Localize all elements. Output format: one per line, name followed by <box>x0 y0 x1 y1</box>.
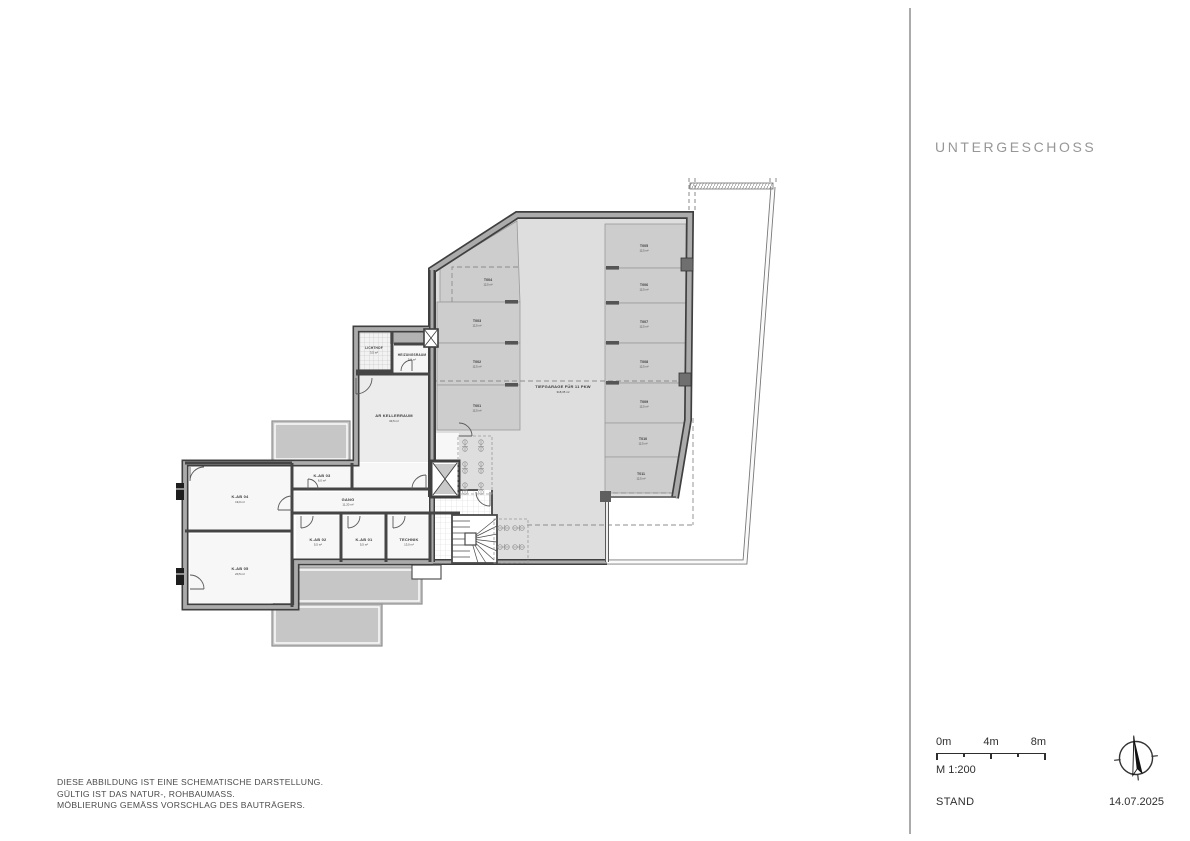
stall-area: 12,5 m² <box>636 477 645 481</box>
stand-date: 14.07.2025 <box>1064 796 1164 808</box>
scale-tick-label-8: 8m <box>1031 736 1046 748</box>
stall-label: T011 <box>637 472 645 476</box>
room-area: 11,20 m² <box>342 503 353 507</box>
room-label: LICHTHOF <box>365 346 383 350</box>
floor-plan-drawing: TIEFGARAGE FÜR 11 PKW 318,35 m² T001 12,… <box>170 165 820 665</box>
stall-area: 12,5 m² <box>639 249 648 253</box>
room-area: 3,5 m² <box>370 351 378 355</box>
stall-area: 12,5 m² <box>472 365 481 369</box>
stall-area: 12,5 m² <box>638 442 647 446</box>
shaft-icon <box>424 329 438 347</box>
scale-bar-tick <box>1044 753 1046 760</box>
north-compass-icon <box>1111 729 1161 785</box>
stall-label: T001 <box>473 404 481 408</box>
room-label: K-AB 04 <box>232 494 250 499</box>
room-label: K-AB 02 <box>310 537 328 542</box>
room-label: K-AB 03 <box>314 473 332 478</box>
room-area: 13,0 m² <box>404 543 414 547</box>
room-area: 6,0 m² <box>318 479 326 483</box>
room-label: GANG <box>342 497 355 502</box>
disclaimer-text: DIESE ABBILDUNG IST EINE SCHEMATISCHE DA… <box>57 777 323 812</box>
stall-label: T010 <box>639 437 647 441</box>
room-label: TECHNIK <box>399 537 418 542</box>
stall-area: 12,5 m² <box>483 283 492 287</box>
stall-label: T009 <box>640 400 648 404</box>
disclaimer-line-2: GÜLTIG IST DAS NATUR-, ROHBAUMASS. <box>57 789 323 801</box>
scale-tick-label-4: 4m <box>983 736 998 748</box>
scale-bar-tick <box>1017 753 1019 757</box>
scale-bar-tick <box>990 753 992 759</box>
sidebar-divider-line <box>909 8 911 834</box>
staircase <box>452 515 497 563</box>
scale-ratio: M 1:200 <box>936 764 976 776</box>
stall-label: T008 <box>640 360 648 364</box>
room-label: HEIZUNGSRAUM <box>398 353 427 357</box>
stall-label: T005 <box>640 244 648 248</box>
scale-bar: 0m 4m 8m <box>936 736 1046 760</box>
elevator-icon <box>431 461 459 497</box>
page-title: UNTERGESCHOSS <box>935 139 1096 155</box>
stall-area: 12,5 m² <box>639 325 648 329</box>
room-area: 33,5 m² <box>389 419 399 423</box>
stall-label: T007 <box>640 320 648 324</box>
room-label: K-AB 05 <box>232 566 250 571</box>
scale-bar-tick <box>936 753 938 760</box>
stall-area: 12,5 m² <box>639 288 648 292</box>
stall-label: T004 <box>484 278 492 282</box>
room-area: 19,0 m² <box>235 500 245 504</box>
stall-area: 12,5 m² <box>472 324 481 328</box>
stall-label: T003 <box>473 319 481 323</box>
stall-area: 12,5 m² <box>472 409 481 413</box>
room-area: 20,5 m² <box>235 572 245 576</box>
room-area: 5,0 m² <box>408 358 416 362</box>
page: UNTERGESCHOSS 0m 4m 8m M 1:200 STAND 14.… <box>0 0 1190 841</box>
garage-label: TIEFGARAGE FÜR 11 PKW <box>535 384 591 389</box>
stall-label: T002 <box>473 360 481 364</box>
stand-label: STAND <box>936 796 974 808</box>
stall-area: 12,5 m² <box>639 365 648 369</box>
garage-area: 318,35 m² <box>556 390 569 394</box>
stall-area: 12,5 m² <box>639 405 648 409</box>
scale-tick-label-0: 0m <box>936 736 951 748</box>
disclaimer-line-1: DIESE ABBILDUNG IST EINE SCHEMATISCHE DA… <box>57 777 323 789</box>
room-label: K-AB 01 <box>356 537 374 542</box>
room-label: AR KELLERRAUM <box>375 413 413 418</box>
disclaimer-line-3: MÖBLIERUNG GEMÄSS VORSCHLAG DES BAUTRÄGE… <box>57 800 323 812</box>
room-area: 5,5 m² <box>314 543 322 547</box>
stall-label: T006 <box>640 283 648 287</box>
scale-bar-tick <box>963 753 965 757</box>
room-area: 5,5 m² <box>360 543 368 547</box>
